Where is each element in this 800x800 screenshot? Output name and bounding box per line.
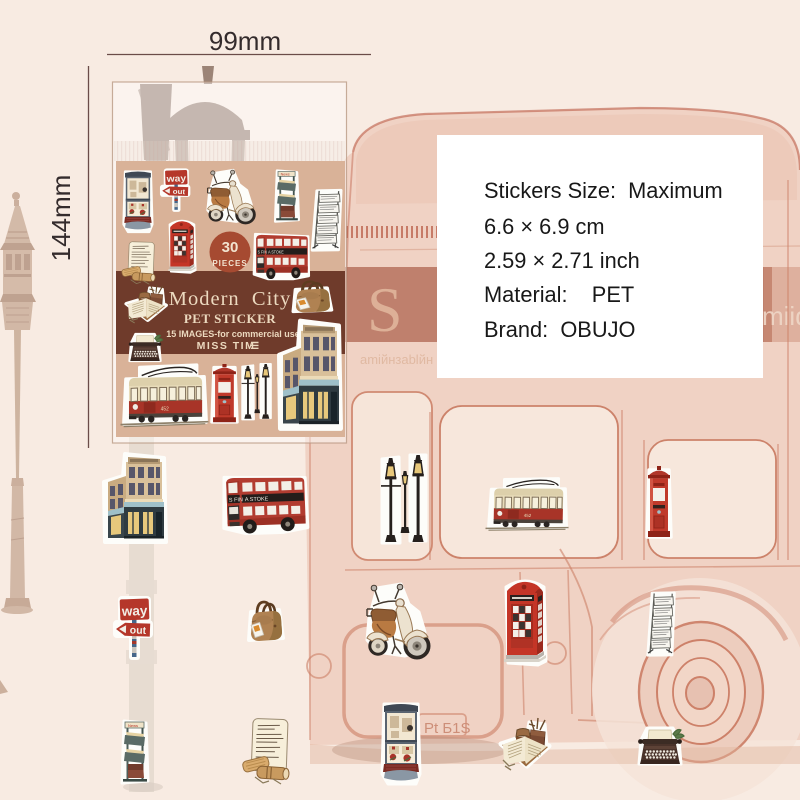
svg-text:Modern City: Modern City — [169, 288, 291, 310]
svg-text:Material: PET: Material: PET — [484, 282, 634, 307]
svg-text:Pt Б1S: Pt Б1S — [424, 720, 471, 737]
svg-text:Stickers Size: Maximum: Stickers Size: Maximum — [484, 178, 723, 203]
svg-text:2.59 × 2.71 inch: 2.59 × 2.71 inch — [484, 248, 640, 273]
svg-text:PIECES: PIECES — [212, 259, 247, 268]
svg-text:15 IMAGES-for commercial use: 15 IMAGES-for commercial use — [166, 329, 300, 339]
svg-text:miid: miid — [762, 301, 800, 331]
svg-text:MISS TIM: MISS TIM — [197, 340, 256, 352]
svg-text:99mm: 99mm — [209, 26, 281, 56]
svg-text:S: S — [367, 274, 403, 345]
svg-text:6.6 × 6.9 cm: 6.6 × 6.9 cm — [484, 214, 605, 239]
svg-text:30: 30 — [222, 239, 239, 256]
svg-text:PET STICKER: PET STICKER — [184, 311, 276, 326]
svg-text:144mm: 144mm — [46, 175, 76, 262]
svg-text:Brand: OBUJO: Brand: OBUJO — [484, 317, 635, 342]
